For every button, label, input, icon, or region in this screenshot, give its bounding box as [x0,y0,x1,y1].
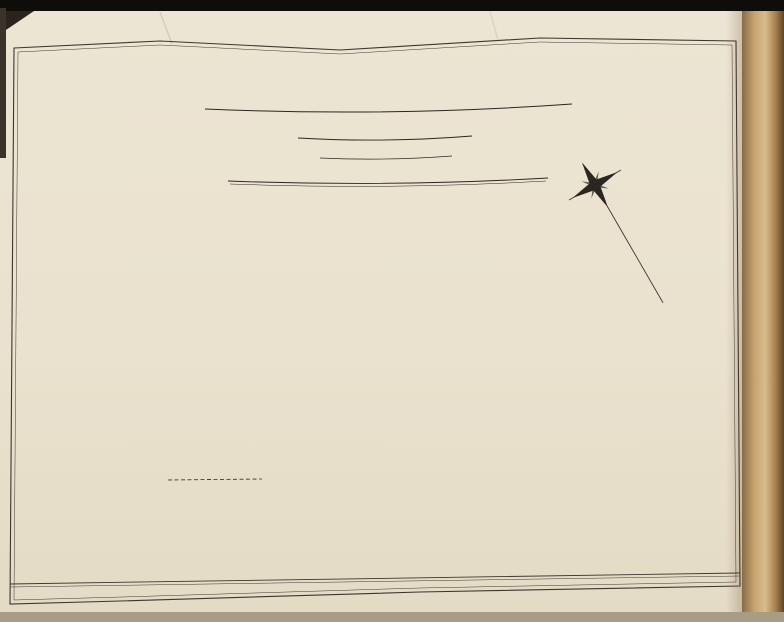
boundary-line-sample [168,479,262,480]
page-curl-shadow [726,0,742,622]
sheet-border [10,11,740,604]
book-top-edge [0,0,784,11]
references-block [168,479,262,480]
map-svg [0,0,784,622]
title-block [205,104,572,186]
photo-backdrop [0,0,784,622]
book-bottom-edge [0,612,784,622]
compass-rose [556,147,689,317]
title-underlines [205,104,572,186]
book-left-edge [0,8,6,158]
page-curl [742,0,784,622]
